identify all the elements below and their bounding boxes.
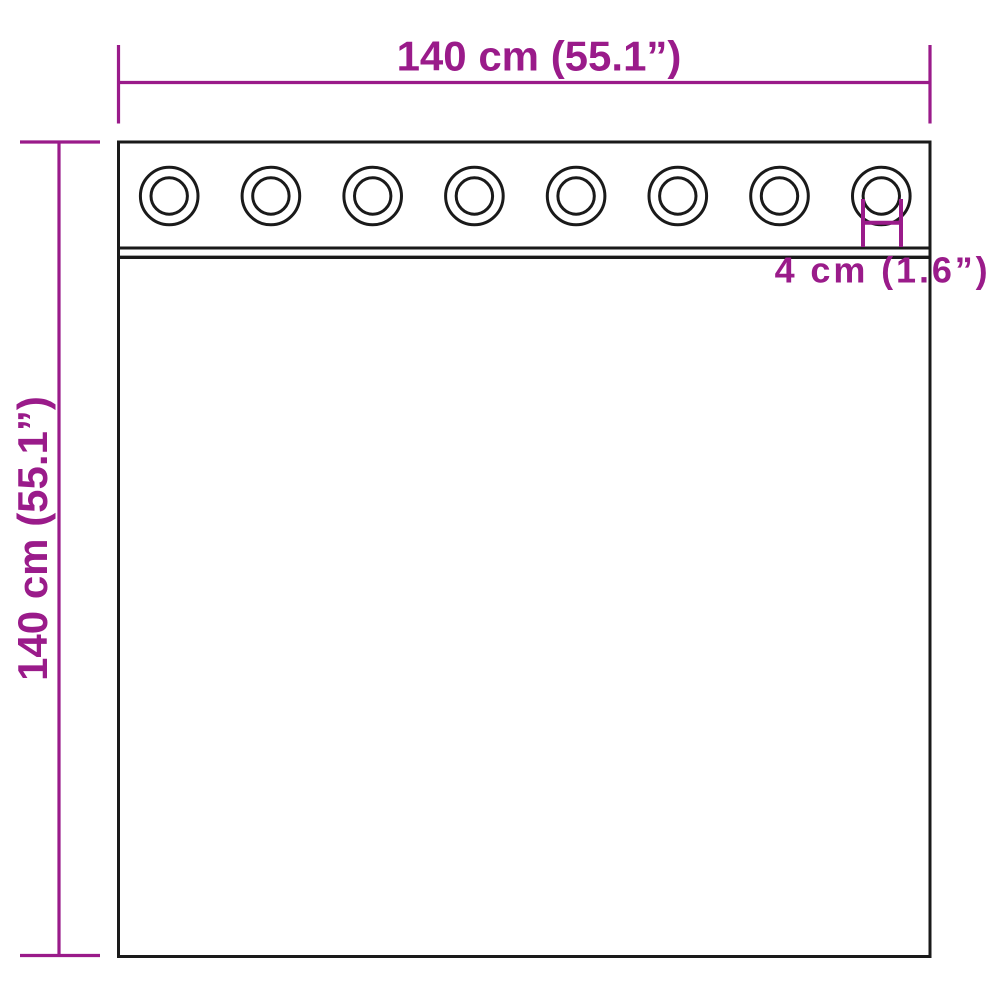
svg-text:140 cm (55.1”): 140 cm (55.1”) [9,396,56,681]
svg-text:140 cm (55.1”): 140 cm (55.1”) [397,33,682,80]
svg-text:4 cm (1.6”): 4 cm (1.6”) [775,250,991,291]
